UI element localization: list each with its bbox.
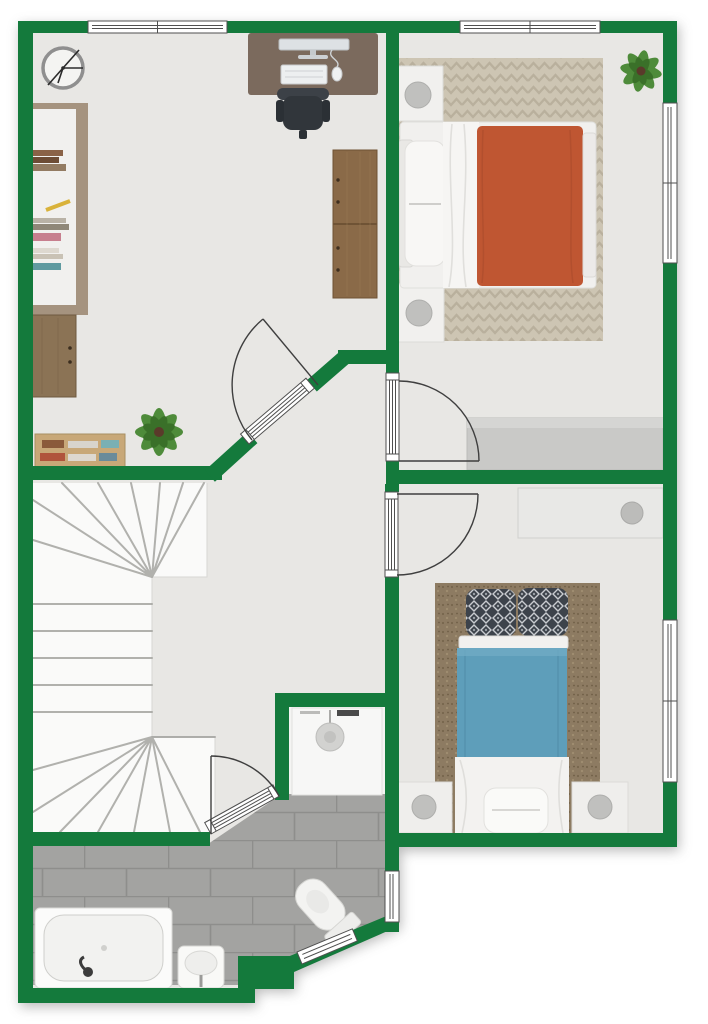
bathtub bbox=[35, 908, 172, 988]
wall-clock bbox=[43, 48, 83, 88]
lamp bbox=[406, 300, 432, 326]
white-dresser bbox=[518, 488, 663, 538]
lamp bbox=[405, 82, 431, 108]
window-office-top bbox=[88, 21, 227, 33]
gray-dresser-top bbox=[467, 418, 663, 428]
window-single-right bbox=[663, 620, 677, 782]
single-bed bbox=[455, 588, 569, 835]
nightstand-right bbox=[572, 782, 628, 833]
nightstand-top bbox=[395, 66, 443, 121]
wall-segment bbox=[386, 21, 399, 373]
washing-machine bbox=[292, 708, 382, 795]
lamp bbox=[412, 795, 436, 819]
nightstand-left bbox=[396, 782, 452, 833]
wall-segment bbox=[238, 956, 294, 989]
footboard bbox=[583, 133, 596, 277]
wall-segment bbox=[663, 261, 677, 622]
wall-segment bbox=[18, 466, 222, 480]
window-bathroom-right bbox=[385, 871, 399, 922]
folded-sheet bbox=[443, 122, 479, 288]
computer-monitor bbox=[279, 39, 349, 50]
nightstand-bottom bbox=[396, 284, 444, 342]
wall-segment bbox=[18, 21, 33, 1003]
wall-segment bbox=[338, 350, 399, 364]
wall-segment bbox=[18, 832, 210, 846]
headboard-bar bbox=[459, 636, 568, 649]
orange-duvet bbox=[477, 126, 583, 286]
keyboard bbox=[281, 65, 327, 84]
wall-segment bbox=[386, 459, 399, 484]
wall-segment bbox=[385, 833, 677, 847]
wall-segment bbox=[18, 988, 255, 1003]
low-bookshelf bbox=[35, 434, 125, 470]
potted-plant bbox=[135, 408, 183, 456]
wall-segment bbox=[227, 21, 460, 33]
blue-duvet bbox=[457, 648, 567, 762]
wardrobe bbox=[333, 150, 377, 298]
floor-plan bbox=[0, 0, 708, 1024]
bookcase bbox=[30, 103, 88, 315]
wall-segment bbox=[275, 693, 289, 800]
lamp bbox=[621, 502, 643, 524]
window-master-right bbox=[663, 103, 677, 263]
mouse bbox=[332, 67, 342, 81]
lamp bbox=[588, 795, 612, 819]
desk bbox=[248, 33, 378, 95]
double-bed bbox=[399, 122, 596, 288]
wall-segment bbox=[386, 470, 677, 484]
window-master-top bbox=[460, 21, 600, 33]
sideboard-cabinet bbox=[30, 315, 76, 397]
wall-segment bbox=[385, 484, 399, 492]
washbasin bbox=[178, 946, 224, 988]
floor-plan-canvas bbox=[0, 0, 708, 1024]
wall-segment bbox=[663, 21, 677, 105]
wall-segment bbox=[275, 693, 399, 707]
